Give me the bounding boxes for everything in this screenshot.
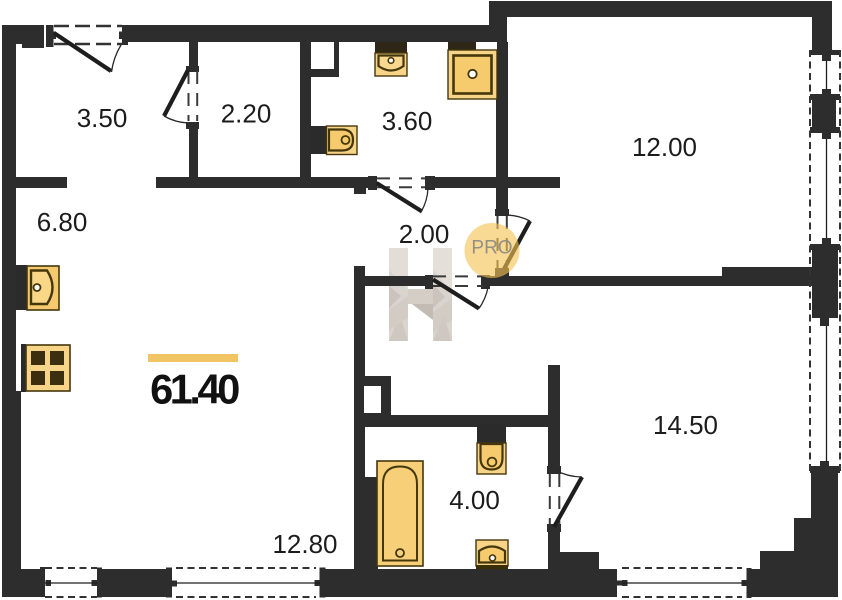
svg-text:6.80: 6.80	[37, 207, 88, 237]
svg-text:12.80: 12.80	[272, 529, 337, 559]
svg-text:2.00: 2.00	[399, 219, 450, 249]
svg-text:4.00: 4.00	[449, 485, 500, 515]
svg-text:PRO: PRO	[471, 238, 512, 259]
svg-text:12.00: 12.00	[632, 132, 697, 162]
svg-text:61.40: 61.40	[150, 366, 239, 413]
svg-text:2.20: 2.20	[221, 99, 272, 129]
svg-text:3.50: 3.50	[77, 103, 128, 133]
svg-text:3.60: 3.60	[382, 106, 433, 136]
svg-text:14.50: 14.50	[653, 410, 718, 440]
